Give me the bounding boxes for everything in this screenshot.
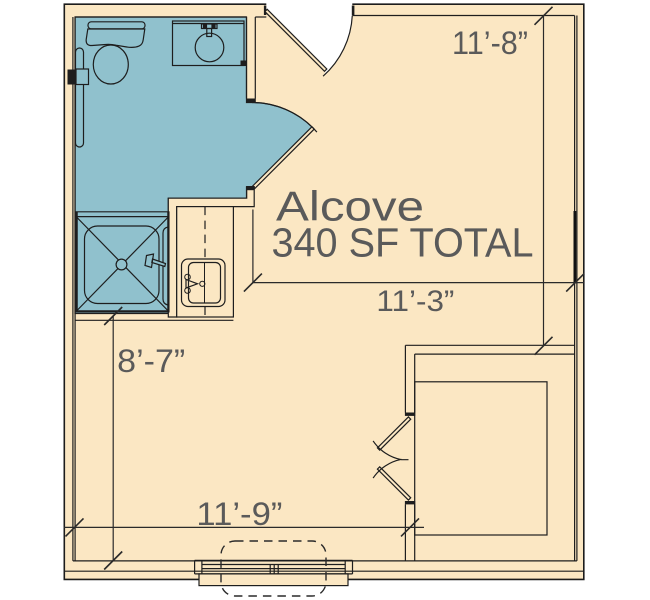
svg-text:11’-9”: 11’-9” bbox=[196, 496, 282, 532]
svg-text:11’-8”: 11’-8” bbox=[452, 25, 528, 61]
svg-text:340 SF TOTAL: 340 SF TOTAL bbox=[272, 220, 534, 266]
svg-text:8’-7”: 8’-7” bbox=[117, 343, 185, 379]
svg-text:11’-3”: 11’-3” bbox=[376, 285, 454, 318]
